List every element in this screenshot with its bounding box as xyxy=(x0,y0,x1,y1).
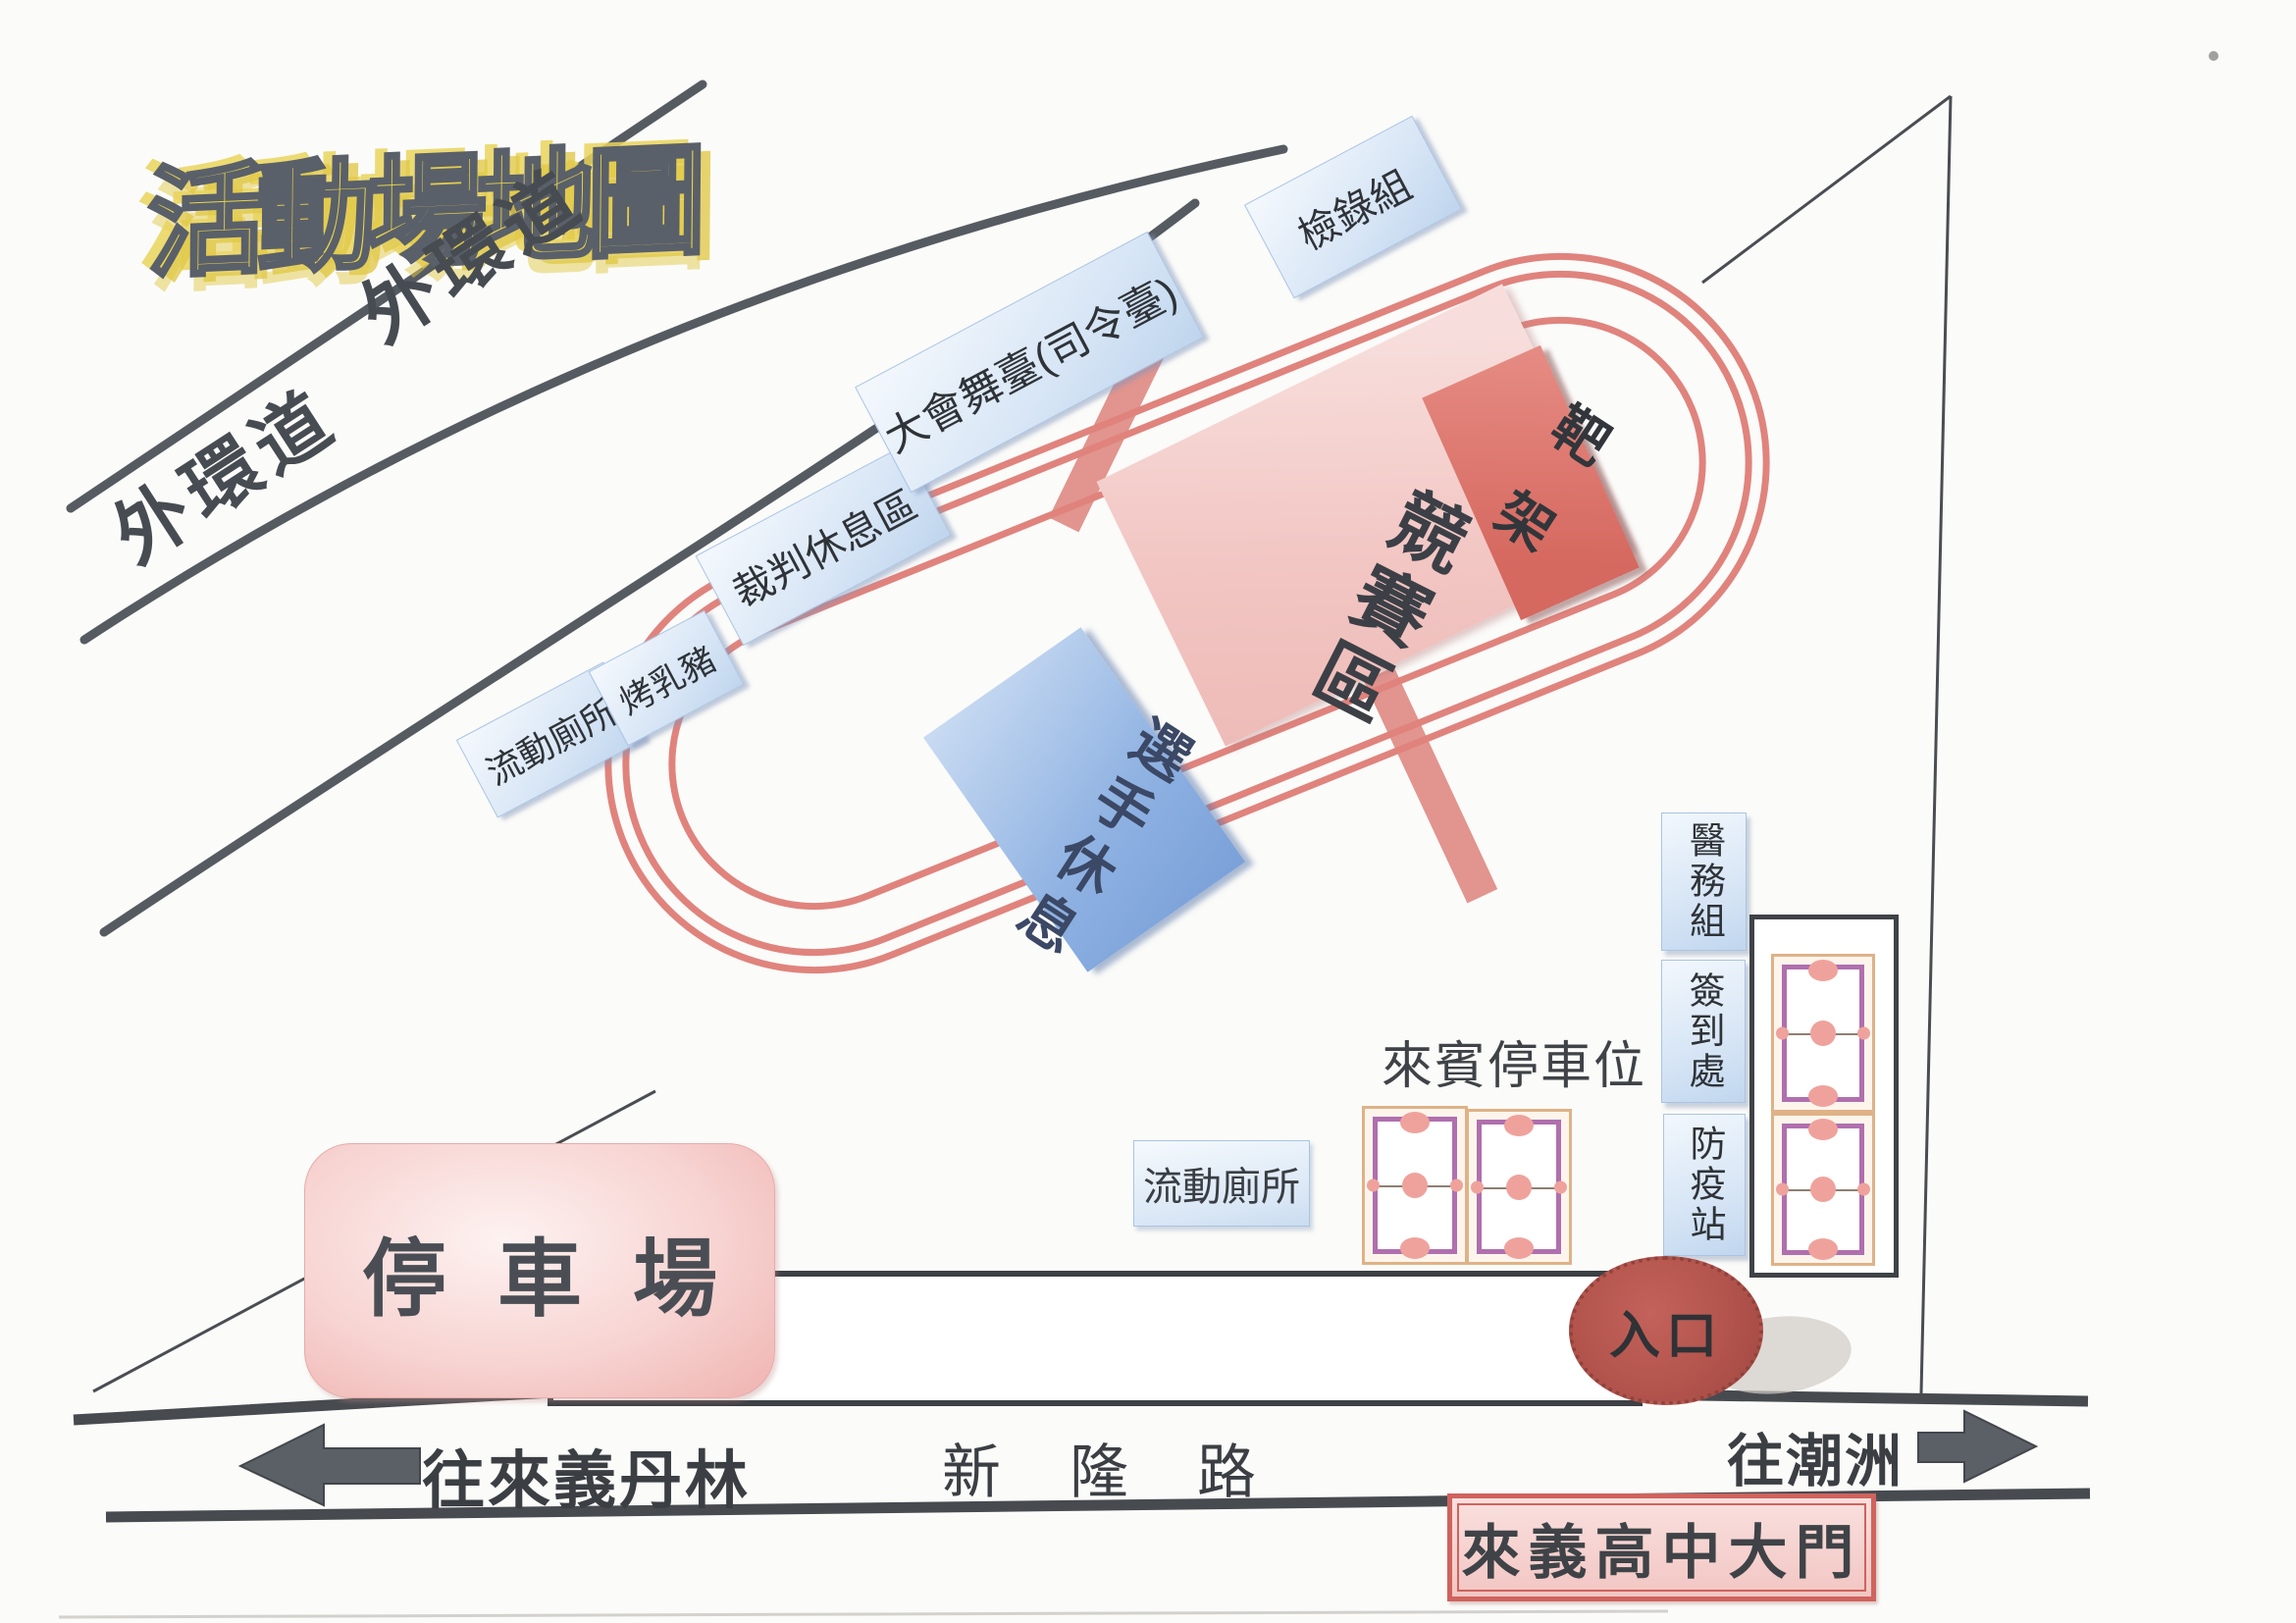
parking-lot-box: 停車場 xyxy=(304,1143,775,1398)
box-medical-team: 醫務組 xyxy=(1661,812,1747,951)
guest-parking-label: 來賓停車位 xyxy=(1382,1024,1646,1098)
right-arrow-icon xyxy=(1918,1411,2036,1482)
venue-map: 活動場地圖 外環道 外環道 流動廁所 烤乳豬 裁判休息區 大會舞臺(司令臺) 檢… xyxy=(0,0,2296,1623)
scan-speck xyxy=(2209,51,2218,61)
site-boundary-right-edge xyxy=(1921,96,1951,1393)
table-clipart-icon xyxy=(1771,954,1875,1113)
school-gate-frame: 來義高中大門 xyxy=(1457,1503,1866,1592)
left-arrow-icon xyxy=(240,1425,420,1505)
page-edge-line xyxy=(59,1611,1668,1617)
box-mobile-toilet-lower-label: 流動廁所 xyxy=(1143,1155,1300,1212)
box-mobile-toilet-lower: 流動廁所 xyxy=(1133,1140,1310,1227)
school-gate-box: 來義高中大門 xyxy=(1447,1493,1876,1601)
box-epidemic-prevention: 防疫站 xyxy=(1663,1114,1746,1256)
table-clipart-icon xyxy=(1466,1109,1572,1265)
direction-left-label: 往來義丹林 xyxy=(422,1431,751,1521)
road-name-label: 新隆路 xyxy=(942,1425,1325,1510)
entrance-label: 入口 xyxy=(1609,1294,1723,1368)
parking-lot-label: 停車場 xyxy=(311,1210,768,1333)
box-sign-in: 簽到處 xyxy=(1661,960,1746,1103)
direction-right-label: 往潮洲 xyxy=(1727,1415,1904,1497)
entrance-ellipse: 入口 xyxy=(1569,1256,1763,1405)
school-gate-label: 來義高中大門 xyxy=(1462,1505,1862,1591)
table-clipart-icon xyxy=(1771,1113,1875,1266)
site-boundary-hypotenuse-upper xyxy=(1702,96,1951,283)
table-clipart-icon xyxy=(1362,1106,1468,1265)
